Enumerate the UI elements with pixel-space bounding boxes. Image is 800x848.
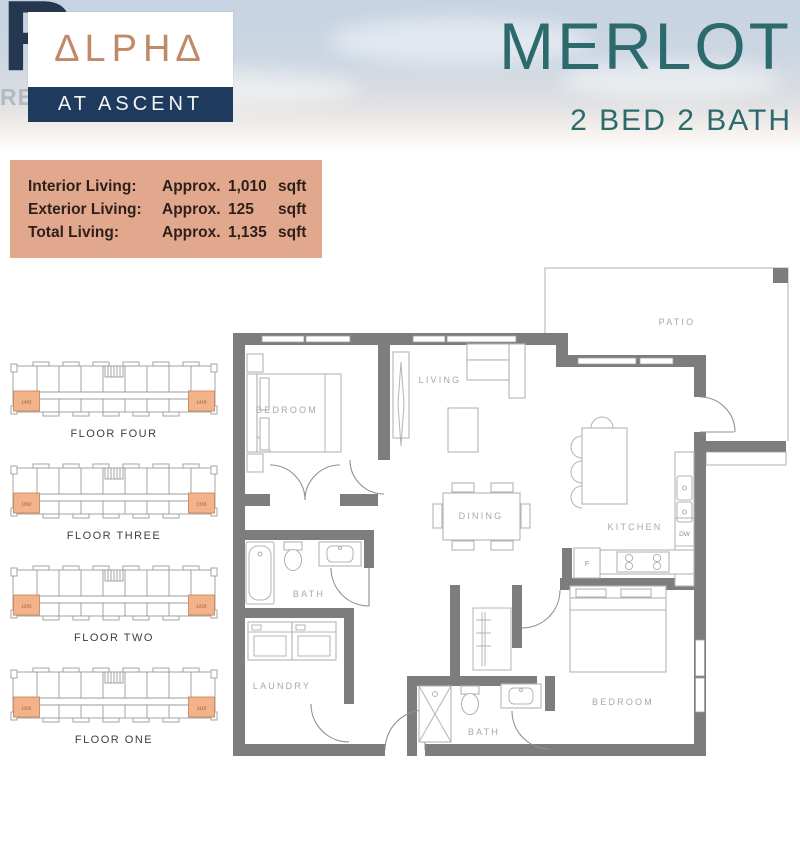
floor-diagram-four: 1402 1416 FLOOR FOUR [8, 358, 220, 440]
floor-diagram-three: 1302 1316 FLOOR THREE [8, 460, 220, 542]
patio-outline [545, 268, 788, 441]
room-label-living: LIVING [419, 375, 462, 385]
stat-label: Interior Living: [28, 175, 162, 198]
brand-sub-bar: AT ASCENT [28, 87, 233, 122]
toilet [461, 686, 479, 694]
stat-value: 125 [228, 198, 278, 221]
floor-diagram-one: 1102 1116 FLOOR ONE [8, 664, 220, 746]
coffee-table [448, 408, 478, 452]
stat-approx: Approx. [162, 198, 228, 221]
brand-name: ∆LPH∆ [55, 28, 205, 71]
floor-label: FLOOR ONE [8, 734, 220, 746]
building-cross-section: 1102 1116 [9, 664, 219, 726]
floorplan-svg: BEDROOM LIVING PATIO DINING KITCHEN BATH… [225, 256, 795, 766]
unit-number-right: 1216 [196, 604, 207, 609]
brand-sub-label: AT ASCENT [58, 93, 203, 116]
building-cross-section: 1402 1416 [9, 358, 219, 420]
stat-unit: sqft [278, 175, 306, 198]
fridge-label: F [585, 561, 589, 568]
toilet [284, 542, 302, 550]
room-label-kitchen: KITCHEN [608, 522, 663, 532]
closet [473, 608, 511, 670]
living-area-stats-box: Interior Living: Approx. 1,010 sqft Exte… [10, 160, 322, 258]
floor-label: FLOOR FOUR [8, 428, 220, 440]
page-title: MERLOT [372, 8, 792, 84]
stat-row-interior: Interior Living: Approx. 1,010 sqft [28, 175, 322, 198]
unit-number-left: 1202 [21, 604, 32, 609]
plan-spec: 2 BED 2 BATH [372, 104, 792, 138]
room-label-laundry: LAUNDRY [253, 681, 311, 691]
building-cross-section: 1302 1316 [9, 460, 219, 522]
laundry-fixtures [248, 622, 336, 660]
room-label-bath1: BATH [293, 589, 325, 599]
washer [248, 622, 292, 660]
building-cross-section: 1202 1216 [9, 562, 219, 624]
stat-row-exterior: Exterior Living: Approx. 125 sqft [28, 198, 322, 221]
stove [617, 552, 669, 572]
room-label-bedroom2: BEDROOM [592, 697, 654, 707]
room-label-patio: PATIO [659, 317, 696, 327]
stat-unit: sqft [278, 221, 306, 244]
patio-wall [706, 441, 786, 452]
patio-column [773, 268, 788, 283]
room-label-bath2: BATH [468, 727, 500, 737]
floor-label: FLOOR THREE [8, 530, 220, 542]
patio-railing [706, 452, 786, 465]
unit-number-right: 1416 [196, 400, 207, 405]
floor-diagram-two: 1202 1216 FLOOR TWO [8, 562, 220, 644]
stat-label: Exterior Living: [28, 198, 162, 221]
stat-approx: Approx. [162, 221, 228, 244]
stat-value: 1,135 [228, 221, 278, 244]
room-label-dining: DINING [459, 511, 504, 521]
floor-location-column: 1402 1416 FLOOR FOUR 1302 1316 FLOOR THR… [8, 358, 220, 766]
bed [570, 598, 666, 672]
floor-label: FLOOR TWO [8, 632, 220, 644]
unit-floorplan: BEDROOM LIVING PATIO DINING KITCHEN BATH… [225, 256, 795, 771]
room-label-bedroom1: BEDROOM [256, 405, 318, 415]
dryer [292, 622, 336, 660]
unit-number-left: 1102 [22, 706, 32, 711]
bedroom2-furniture [473, 586, 666, 672]
stat-approx: Approx. [162, 175, 228, 198]
unit-number-right: 1116 [197, 706, 207, 711]
kitchen-island [582, 428, 627, 504]
stat-label: Total Living: [28, 221, 162, 244]
living-furniture [393, 344, 525, 452]
dishwasher-label: DW [679, 531, 691, 538]
unit-number-left: 1302 [21, 502, 32, 507]
unit-number-left: 1402 [21, 400, 32, 405]
unit-number-right: 1316 [196, 502, 207, 507]
stat-row-total: Total Living: Approx. 1,135 sqft [28, 221, 322, 244]
stat-value: 1,010 [228, 175, 278, 198]
kitchen-fixtures [571, 417, 694, 586]
stat-unit: sqft [278, 198, 306, 221]
brand-logo-box: ∆LPH∆ [28, 12, 233, 87]
kitchen-sink [677, 476, 692, 500]
